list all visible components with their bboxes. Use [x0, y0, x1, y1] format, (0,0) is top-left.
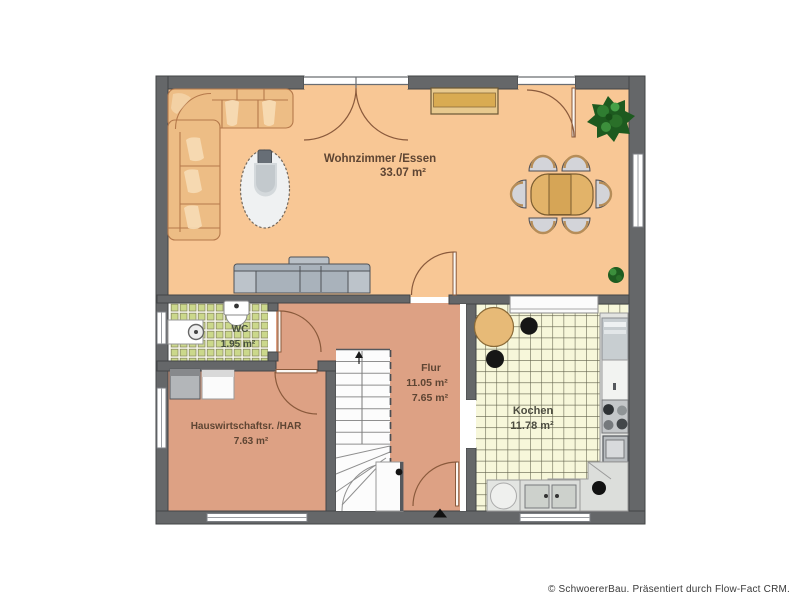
- svg-text:Hauswirtschaftsr. /HAR: Hauswirtschaftsr. /HAR: [191, 421, 302, 432]
- svg-text:Kochen: Kochen: [513, 405, 554, 417]
- svg-text:1.95 m²: 1.95 m²: [221, 339, 256, 350]
- svg-text:11.78 m²: 11.78 m²: [510, 420, 554, 432]
- svg-text:© SchwoererBau. Präsentiert du: © SchwoererBau. Präsentiert durch Flow-F…: [548, 584, 790, 595]
- svg-text:Wohnzimmer /Essen: Wohnzimmer /Essen: [324, 153, 436, 165]
- svg-text:7.63 m²: 7.63 m²: [234, 436, 269, 447]
- svg-text:33.07 m²: 33.07 m²: [380, 167, 426, 179]
- svg-text:11.05 m²: 11.05 m²: [406, 377, 448, 389]
- svg-text:7.65 m²: 7.65 m²: [412, 392, 449, 404]
- svg-text:WC: WC: [232, 324, 249, 335]
- svg-text:Flur: Flur: [421, 362, 441, 374]
